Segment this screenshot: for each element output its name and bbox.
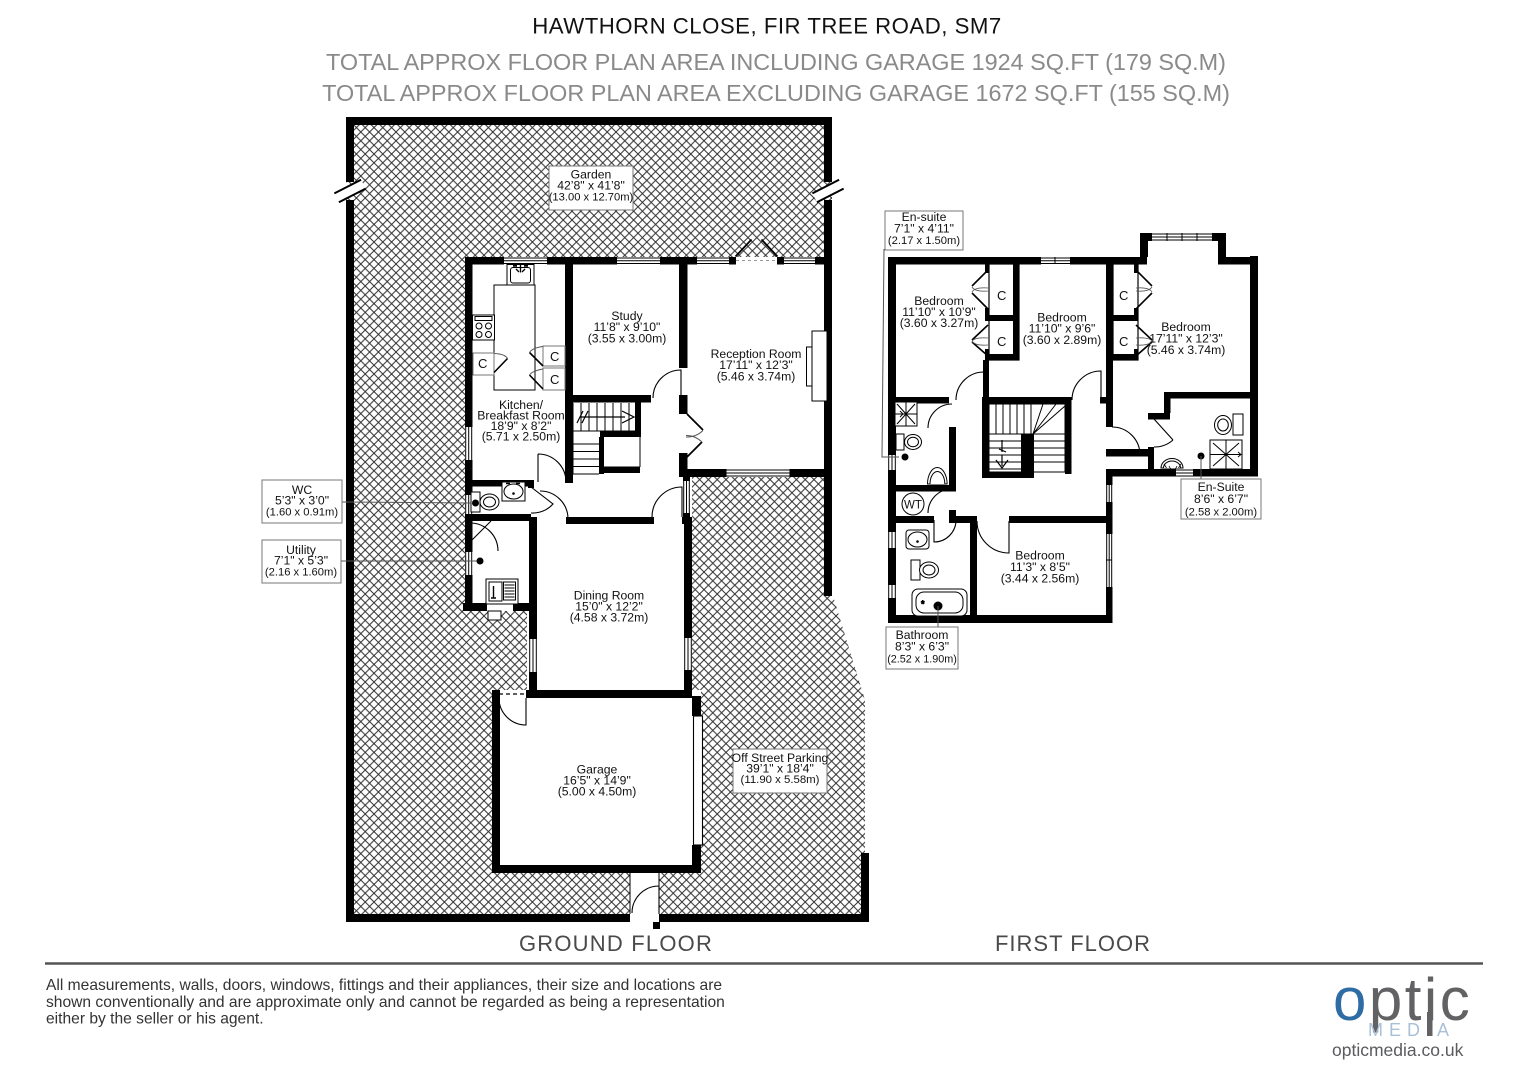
svg-text:(11.90 x 5.58m): (11.90 x 5.58m): [741, 774, 820, 786]
svg-text:C: C: [997, 288, 1006, 303]
svg-text:(2.58 x 2.00m): (2.58 x 2.00m): [1185, 507, 1257, 519]
svg-text:(5.71 x 2.50m): (5.71 x 2.50m): [482, 430, 561, 444]
svg-text:FIRST FLOOR: FIRST FLOOR: [995, 931, 1151, 956]
svg-text:opticmedia.co.uk: opticmedia.co.uk: [1332, 1040, 1464, 1060]
svg-text:C: C: [478, 356, 487, 371]
svg-text:either by the seller or his ag: either by the seller or his agent.: [46, 1011, 264, 1028]
svg-text:TOTAL APPROX FLOOR PLAN AREA I: TOTAL APPROX FLOOR PLAN AREA INCLUDING G…: [326, 49, 1226, 75]
svg-text:(1.60 x 0.91m): (1.60 x 0.91m): [266, 507, 338, 519]
svg-text:(3.44 x 2.56m): (3.44 x 2.56m): [1001, 572, 1080, 586]
svg-text:HAWTHORN CLOSE, FIR TREE ROAD,: HAWTHORN CLOSE, FIR TREE ROAD, SM7: [532, 14, 1001, 39]
svg-text:8’6" x 6’7": 8’6" x 6’7": [1194, 492, 1248, 506]
svg-text:*: *: [921, 599, 925, 609]
svg-text:7’1" x 4’11": 7’1" x 4’11": [894, 222, 954, 236]
svg-text:C: C: [550, 349, 559, 364]
svg-text:TOTAL APPROX FLOOR PLAN AREA E: TOTAL APPROX FLOOR PLAN AREA EXCLUDING G…: [322, 80, 1230, 106]
svg-text:(13.00 x 12.70m): (13.00 x 12.70m): [549, 192, 634, 204]
svg-text:shown conventionally and are a: shown conventionally and are approximate…: [46, 994, 725, 1011]
svg-text:(2.52 x 1.90m): (2.52 x 1.90m): [887, 654, 957, 666]
svg-text:(3.60 x 2.89m): (3.60 x 2.89m): [1023, 333, 1102, 347]
svg-text:GROUND FLOOR: GROUND FLOOR: [519, 931, 713, 956]
svg-text:(5.46 x 3.74m): (5.46 x 3.74m): [717, 370, 796, 384]
svg-text:(5.00 x 4.50m): (5.00 x 4.50m): [558, 785, 637, 799]
svg-text:(3.55 x 3.00m): (3.55 x 3.00m): [588, 332, 667, 346]
svg-text:(5.46 x 3.74m): (5.46 x 3.74m): [1147, 343, 1226, 357]
svg-text:(2.17 x 1.50m): (2.17 x 1.50m): [888, 235, 960, 247]
svg-text:7’1" x 5’3": 7’1" x 5’3": [274, 554, 328, 568]
svg-text:5’3" x 3’0": 5’3" x 3’0": [275, 494, 329, 508]
svg-text:(4.58 x 3.72m): (4.58 x 3.72m): [570, 611, 649, 625]
svg-text:MEDIA: MEDIA: [1368, 1020, 1455, 1040]
svg-text:(2.16 x 1.60m): (2.16 x 1.60m): [265, 567, 337, 579]
svg-text:All measurements, walls, doors: All measurements, walls, doors, windows,…: [46, 977, 722, 994]
svg-text:42’8" x 41’8": 42’8" x 41’8": [557, 179, 625, 193]
svg-text:(3.60 x 3.27m): (3.60 x 3.27m): [900, 316, 979, 330]
svg-text:8’3" x 6’3": 8’3" x 6’3": [895, 640, 949, 654]
svg-text:WT: WT: [904, 500, 922, 512]
svg-text:C: C: [997, 334, 1006, 349]
svg-text:C: C: [1119, 334, 1128, 349]
svg-text:C: C: [550, 372, 559, 387]
svg-text:C: C: [1119, 288, 1128, 303]
